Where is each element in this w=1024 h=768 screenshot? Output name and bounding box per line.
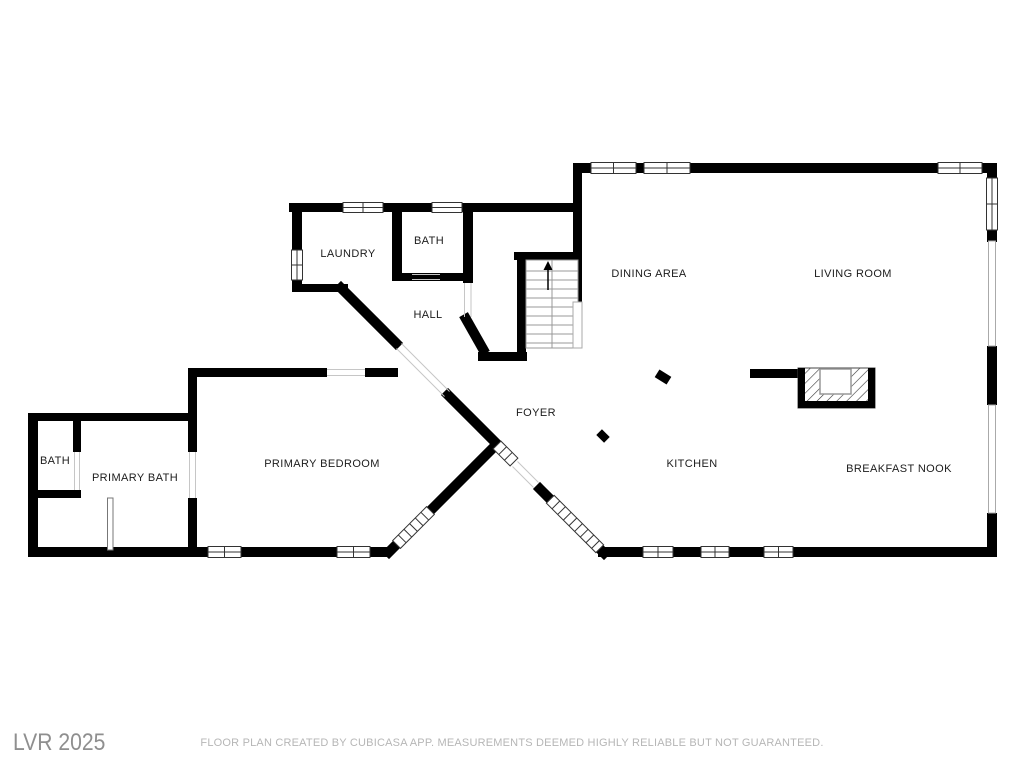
window [337,547,370,558]
floor-plan-page: LAUNDRY BATH HALL DINING AREA LIVING ROO… [0,0,1024,768]
door-stubs [596,369,671,442]
shower-partition [108,498,114,550]
wall-segment [28,413,195,421]
room-label-laundry: LAUNDRY [320,248,375,260]
wall-segment [365,368,398,377]
room-label-foyer: FOYER [516,407,556,419]
disclaimer-text: FLOOR PLAN CREATED BY CUBICASA APP. MEAS… [0,737,1024,749]
window [292,250,303,280]
window [546,495,603,552]
door-opening [397,344,450,397]
floor-plan-canvas: LAUNDRY BATH HALL DINING AREA LIVING ROO… [0,0,1024,768]
window [432,203,462,213]
door-opening [327,370,365,376]
room-label-primary-bath: PRIMARY BATH [92,472,178,484]
door-stub [655,369,672,384]
wall-segment [392,207,402,281]
wall-segment [73,417,81,452]
wall-segment [987,346,997,405]
room-label-kitchen: KITCHEN [666,458,717,470]
door-stub [596,429,609,442]
stairs [526,260,582,348]
window [208,547,241,558]
room-label-primary-bedroom: PRIMARY BEDROOM [264,458,380,470]
wall-segment [37,490,81,498]
wall-segment [514,252,582,260]
wall-segment [188,368,197,452]
window [989,405,996,513]
window [393,507,435,549]
wall-segment [188,498,197,557]
wall-segment [540,489,547,496]
wall-segment [463,203,473,283]
wall-segment [341,288,396,343]
firebox [820,369,851,394]
wall-segment [573,163,997,173]
walls [28,163,997,557]
wall-segment [517,252,526,361]
wall-segment [466,319,483,349]
window [701,547,729,558]
window [493,441,518,466]
door-opening [190,452,196,498]
window [764,547,793,558]
window [987,178,998,230]
window [643,547,673,558]
door-opening [75,452,80,490]
wall-segment [448,395,495,442]
fireplace [798,368,875,408]
wall-segment [987,163,997,178]
windows [208,163,998,558]
room-label-living-room: LIVING ROOM [814,268,892,280]
room-label-bath-small: BATH [40,455,70,467]
door-opening [513,462,539,488]
room-label-dining-area: DINING AREA [611,268,687,280]
wall-segment [750,369,805,378]
room-label-hall: HALL [413,309,442,321]
wall-segment [431,447,494,510]
window [938,163,982,174]
window [591,163,636,174]
window [343,203,383,213]
wall-segment [28,413,38,557]
wall-segment [188,368,327,377]
door-opening [465,283,472,317]
room-label-breakfast-nook: BREAKFAST NOOK [846,463,952,475]
window [989,241,996,346]
wall-segment [987,230,997,242]
room-label-bath-upper: BATH [414,235,444,247]
window [644,163,690,174]
